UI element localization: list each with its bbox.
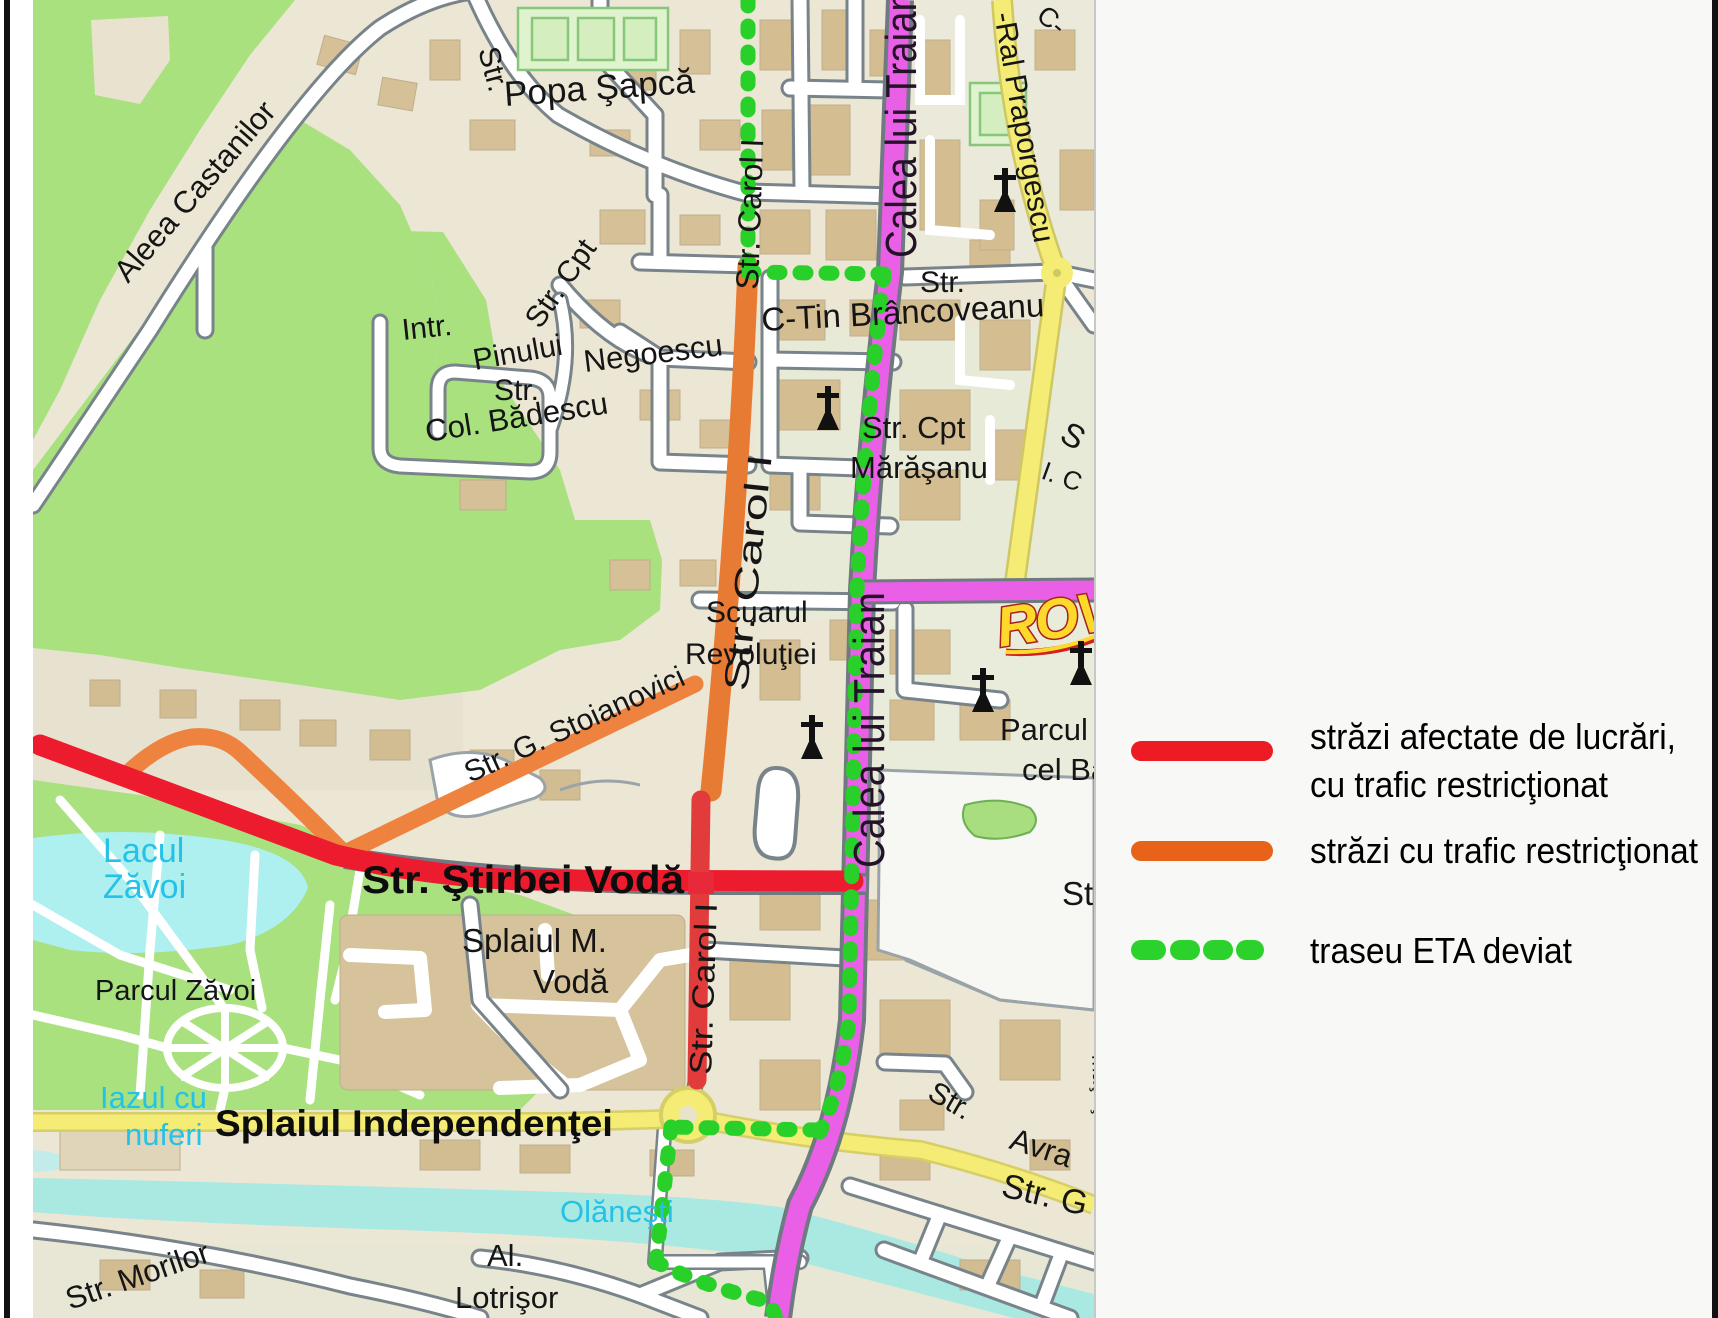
svg-text:Splaiul M.: Splaiul M. (462, 922, 607, 959)
svg-text:străzi cu trafic restricţionat: străzi cu trafic restricţionat (1310, 830, 1698, 871)
svg-text:Mărăşanu: Mărăşanu (850, 450, 988, 485)
svg-text:Olăneşti: Olăneşti (560, 1194, 674, 1229)
svg-text:străzi afectate de lucrări,: străzi afectate de lucrări, (1310, 716, 1676, 757)
svg-text:Iazul cu: Iazul cu (100, 1080, 207, 1115)
svg-text:Calea lui Traian: Calea lui Traian (877, 0, 926, 258)
svg-text:Vodă: Vodă (533, 963, 609, 1000)
svg-text:Intr.: Intr. (400, 309, 453, 347)
svg-text:Lotrişor: Lotrişor (455, 1280, 558, 1315)
svg-text:Parcul Zăvoi: Parcul Zăvoi (95, 975, 256, 1007)
svg-text:Str. Cpt: Str. Cpt (862, 410, 966, 445)
svg-text:Str. Ştirbei Vodă: Str. Ştirbei Vodă (362, 859, 684, 902)
svg-text:traseu ETA deviat: traseu ETA deviat (1310, 930, 1572, 971)
svg-text:nuferi: nuferi (125, 1117, 203, 1152)
svg-text:Str. Carol I: Str. Carol I (729, 138, 770, 290)
svg-text:Str. Carol I: Str. Carol I (683, 902, 724, 1075)
svg-text:cu trafic restricţionat: cu trafic restricţionat (1310, 764, 1608, 805)
svg-text:Splaiul Independenţei: Splaiul Independenţei (215, 1103, 613, 1144)
svg-text:Al.: Al. (487, 1238, 523, 1273)
svg-text:Lacul: Lacul (103, 832, 184, 870)
svg-text:St: St (1062, 875, 1093, 912)
svg-text:Zăvoi: Zăvoi (103, 868, 186, 906)
svg-text:Calea lui Traian: Calea lui Traian (845, 592, 894, 868)
